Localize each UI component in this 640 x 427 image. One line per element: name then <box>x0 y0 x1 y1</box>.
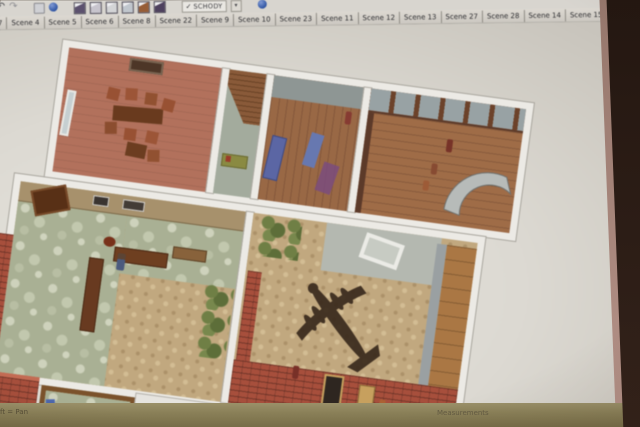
blue-mat[interactable] <box>302 132 325 168</box>
scene-tab[interactable]: Scene 8 <box>118 15 155 28</box>
scene-tab[interactable]: Scene 9 <box>197 14 234 27</box>
scene-tab[interactable]: Scene 22 <box>155 14 197 27</box>
help-circle-icon[interactable] <box>48 2 57 11</box>
chair[interactable] <box>147 150 159 162</box>
chair[interactable] <box>106 87 121 102</box>
person-figure[interactable] <box>446 139 454 153</box>
scene-tab[interactable]: Scene 28 <box>483 9 525 22</box>
scene-tab[interactable]: Scene 5 <box>44 16 81 29</box>
status-hint: ft = Pan <box>0 408 28 416</box>
hall-left-room[interactable] <box>0 181 247 402</box>
scene-tab[interactable]: Scene 4 <box>7 16 44 29</box>
play-room[interactable] <box>355 88 526 233</box>
window-band[interactable] <box>368 88 526 133</box>
person-figure[interactable] <box>422 180 429 191</box>
dining-room[interactable] <box>52 48 222 193</box>
scene-tab[interactable]: Scene 12 <box>358 11 400 24</box>
chair[interactable] <box>105 122 117 134</box>
curved-desk[interactable] <box>439 161 516 225</box>
scene-tab[interactable]: Scene 23 <box>275 12 317 25</box>
screen-bottom-strip <box>0 403 640 427</box>
stone-floor[interactable] <box>0 201 127 386</box>
window[interactable] <box>92 195 109 207</box>
photo-of-projection: ↶ ↷ ✓ SCHODY ▾ <box>0 0 640 427</box>
style-shaded-cube-icon[interactable] <box>121 1 133 13</box>
chair[interactable] <box>123 128 136 141</box>
chair[interactable] <box>144 92 157 105</box>
style-wireframe-cube-icon[interactable] <box>89 2 101 14</box>
undo-icon[interactable]: ↶ <box>0 1 5 12</box>
scene-tab[interactable]: Scene 11 <box>317 12 359 25</box>
scene-tab[interactable]: Scene 14 <box>524 9 566 22</box>
style-xray-cube-icon[interactable] <box>73 2 85 14</box>
house-model[interactable] <box>0 36 541 419</box>
radiator-detail <box>225 156 231 163</box>
scene-tab[interactable]: Scene 10 <box>234 13 276 26</box>
measurements-label: Measurements <box>437 409 489 417</box>
ui-chrome: ↶ ↷ ✓ SCHODY ▾ <box>0 0 625 418</box>
chair[interactable] <box>145 130 159 144</box>
wall-picture[interactable] <box>129 58 164 75</box>
sketchup-window: ↶ ↷ ✓ SCHODY ▾ <box>0 0 618 412</box>
redo-icon[interactable]: ↷ <box>9 1 18 12</box>
side-table[interactable] <box>125 142 147 160</box>
layer-dropdown[interactable]: ▾ <box>230 0 241 12</box>
bedroom[interactable] <box>258 75 365 211</box>
scene-tab[interactable]: Scene 13 <box>400 11 442 24</box>
person-figure[interactable] <box>430 163 437 175</box>
info-circle-icon[interactable] <box>257 0 266 9</box>
person-figure[interactable] <box>344 111 352 125</box>
style-textured-cube-icon[interactable] <box>137 1 149 13</box>
blue-mattress[interactable] <box>262 135 287 181</box>
scene-tab[interactable]: Scene 6 <box>81 15 118 28</box>
chair[interactable] <box>125 88 138 101</box>
style-monochrome-cube-icon[interactable] <box>153 1 165 13</box>
checkmark-icon: ✓ <box>186 3 192 11</box>
purple-mat[interactable] <box>314 161 339 195</box>
layer-name-label: SCHODY <box>193 2 222 10</box>
scene-tab[interactable]: Scene 27 <box>441 10 483 23</box>
model-canvas[interactable] <box>0 22 625 419</box>
tool-icon[interactable] <box>33 3 44 14</box>
style-hiddenline-cube-icon[interactable] <box>105 2 117 14</box>
airplane-hall[interactable] <box>228 213 478 419</box>
layer-visibility-checkbox[interactable]: ✓ SCHODY <box>181 0 226 13</box>
window[interactable] <box>59 89 76 136</box>
bedroom-back-wall <box>271 75 364 109</box>
planter[interactable] <box>256 214 303 261</box>
dining-table[interactable] <box>112 105 163 124</box>
